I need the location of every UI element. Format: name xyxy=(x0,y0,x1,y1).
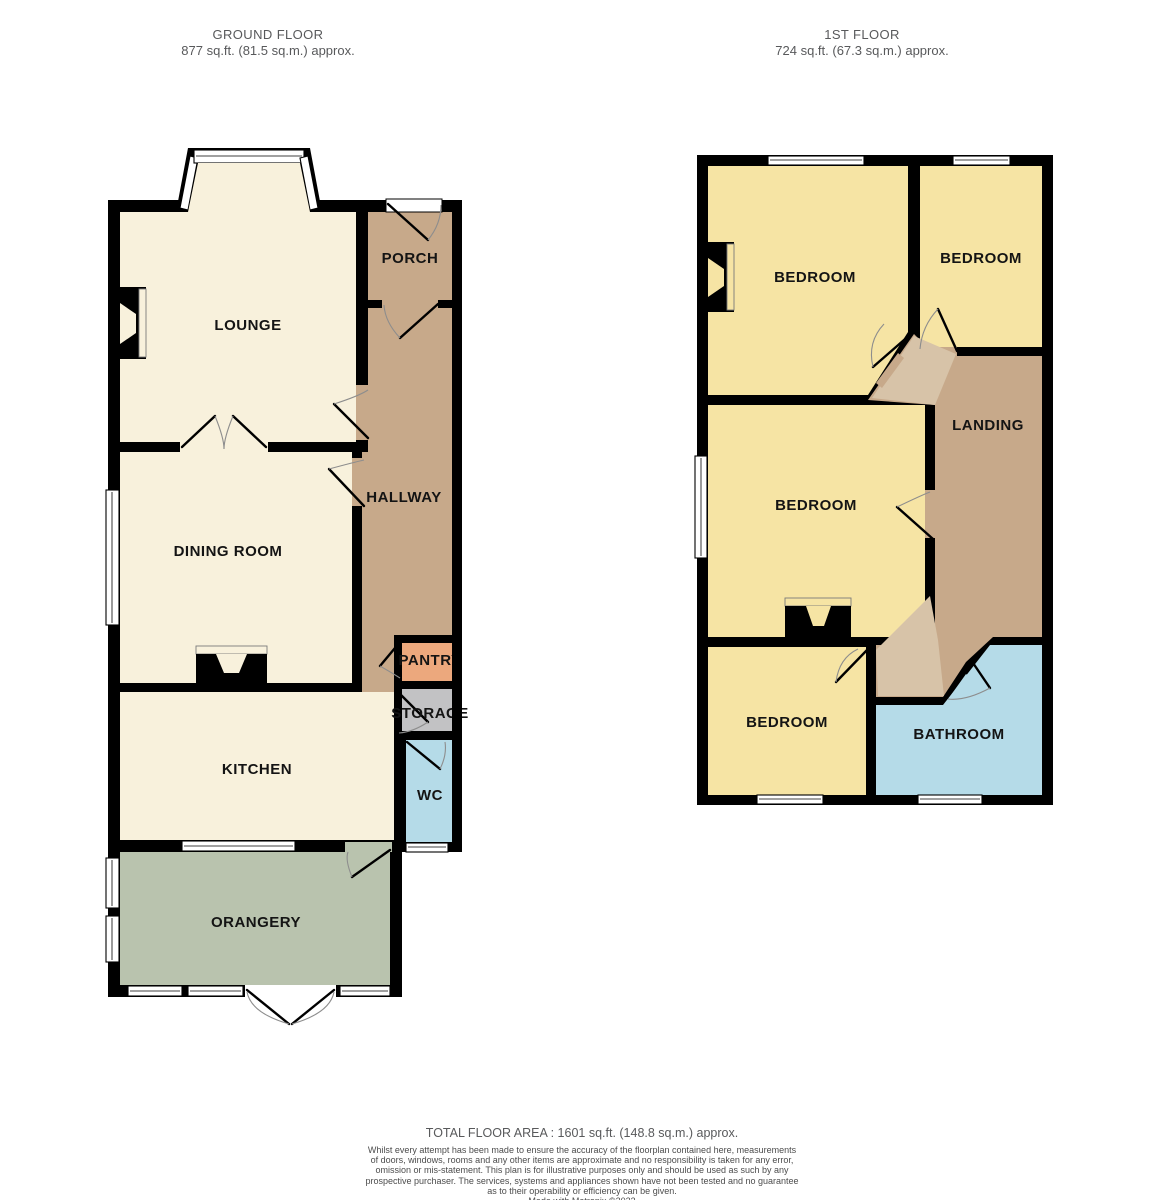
disclaimer: Whilst every attempt has been made to en… xyxy=(0,1145,1164,1200)
orangery-bottom-window-2 xyxy=(188,986,243,996)
ground-floor-plan: LOUNGE PORCH HALLWAY DINING ROOM PANTRY … xyxy=(106,148,469,1024)
bathroom-bottom-window xyxy=(918,795,982,804)
chimney-liner xyxy=(196,646,267,654)
bedroom2-top-window xyxy=(953,156,1010,165)
room-label-porch: PORCH xyxy=(382,250,439,267)
bedroom3-left-window xyxy=(695,456,707,558)
room-label-bedroom-4: BEDROOM xyxy=(746,714,828,731)
orangery-left-window-2 xyxy=(106,916,119,962)
room-label-wc: WC xyxy=(417,787,443,804)
lounge-chimney xyxy=(120,287,146,359)
dining-window xyxy=(106,490,119,625)
dining-chimney xyxy=(196,646,267,683)
porch-hall-opening xyxy=(382,300,438,308)
bedroom-chimney xyxy=(708,242,734,312)
disclaimer-line: omission or mis-statement. This plan is … xyxy=(0,1165,1164,1175)
disclaimer-line: Whilst every attempt has been made to en… xyxy=(0,1145,1164,1155)
room-label-kitchen: KITCHEN xyxy=(222,761,292,778)
bedroom3-door-opening xyxy=(925,490,935,538)
disclaimer-line: of doors, windows, rooms and any other i… xyxy=(0,1155,1164,1165)
room-label-bedroom-3: BEDROOM xyxy=(775,497,857,514)
right-wall-segment xyxy=(452,630,462,745)
first-floor-plan: BEDROOM BEDROOM LANDING BEDROOM BEDROOM … xyxy=(695,155,1053,805)
kitchen-orangery-opening xyxy=(345,842,392,852)
room-label-lounge: LOUNGE xyxy=(214,317,281,334)
room-label-bedroom-1: BEDROOM xyxy=(774,269,856,286)
bay-window-top xyxy=(194,150,304,163)
room-label-bathroom: BATHROOM xyxy=(913,726,1004,743)
bedroom3-chimney xyxy=(785,598,851,637)
orangery-bottom-window-3 xyxy=(340,986,390,996)
footer: TOTAL FLOOR AREA : 1601 sq.ft. (148.8 sq… xyxy=(0,1126,1164,1200)
orangery-left-window-1 xyxy=(106,858,119,908)
room-label-orangery: ORANGERY xyxy=(211,914,301,931)
orangery-bottom-window-1 xyxy=(128,986,182,996)
disclaimer-line: prospective purchaser. The services, sys… xyxy=(0,1176,1164,1186)
chimney-liner xyxy=(139,289,146,357)
room-label-dining: DINING ROOM xyxy=(174,543,283,560)
floorplan-page: GROUND FLOOR 877 sq.ft. (81.5 sq.m.) app… xyxy=(0,0,1164,1200)
kitchen-orangery-window xyxy=(182,841,295,851)
floorplan-drawing: LOUNGE PORCH HALLWAY DINING ROOM PANTRY … xyxy=(0,0,1164,1200)
room-label-landing: LANDING xyxy=(952,417,1024,434)
wc-window xyxy=(406,843,448,852)
room-label-bedroom-2: BEDROOM xyxy=(940,250,1022,267)
metropix-credit: Made with Metropix ©2023 xyxy=(0,1196,1164,1200)
disclaimer-line: as to their operability or efficiency ca… xyxy=(0,1186,1164,1196)
room-label-hallway: HALLWAY xyxy=(366,489,441,506)
orangery-french-door-opening xyxy=(245,985,336,997)
bedroom4-bottom-window xyxy=(757,795,823,804)
chimney-liner xyxy=(785,598,851,606)
chimney-liner xyxy=(727,244,734,310)
total-floor-area: TOTAL FLOOR AREA : 1601 sq.ft. (148.8 sq… xyxy=(0,1126,1164,1140)
bedroom1-top-window xyxy=(768,156,864,165)
